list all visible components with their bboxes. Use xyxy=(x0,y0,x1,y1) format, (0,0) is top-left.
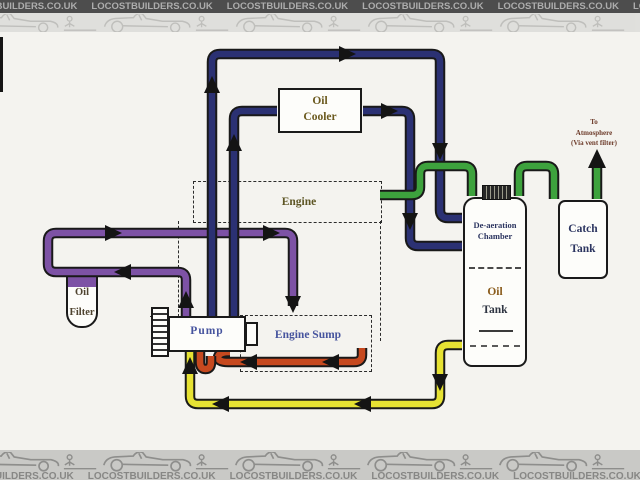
scanned-oil-system-diagram-page: LOCOSTBUILDERS.CO.UK LOCOSTBUILDERS.CO.U… xyxy=(0,0,640,480)
pump-label: Pump xyxy=(168,325,246,337)
pump-drive-belt-icon xyxy=(151,307,169,357)
oil-tank-label: Oil Tank xyxy=(463,283,527,319)
tank-lower-divider xyxy=(470,345,520,347)
to-atmosphere-note: To Atmosphere (Via vent filter) xyxy=(548,117,640,149)
feed-pipe-yellow xyxy=(190,345,462,404)
chamber-tank-divider xyxy=(469,267,521,269)
catch-tank-label: Catch Tank xyxy=(558,219,608,259)
engine-label: Engine xyxy=(259,196,339,208)
oil-level-mark xyxy=(479,330,513,332)
cooler-pipe-blue xyxy=(234,111,462,320)
pipe-network xyxy=(0,0,640,480)
engine-sump-label: Engine Sump xyxy=(248,329,368,341)
deaeration-chamber-label: De-aeration Chamber xyxy=(462,220,528,242)
chamber-filler-cap xyxy=(482,185,511,200)
oil-filter-label: Oil Filter xyxy=(58,283,106,323)
oil-cooler-label: Oil Cooler xyxy=(279,93,361,125)
